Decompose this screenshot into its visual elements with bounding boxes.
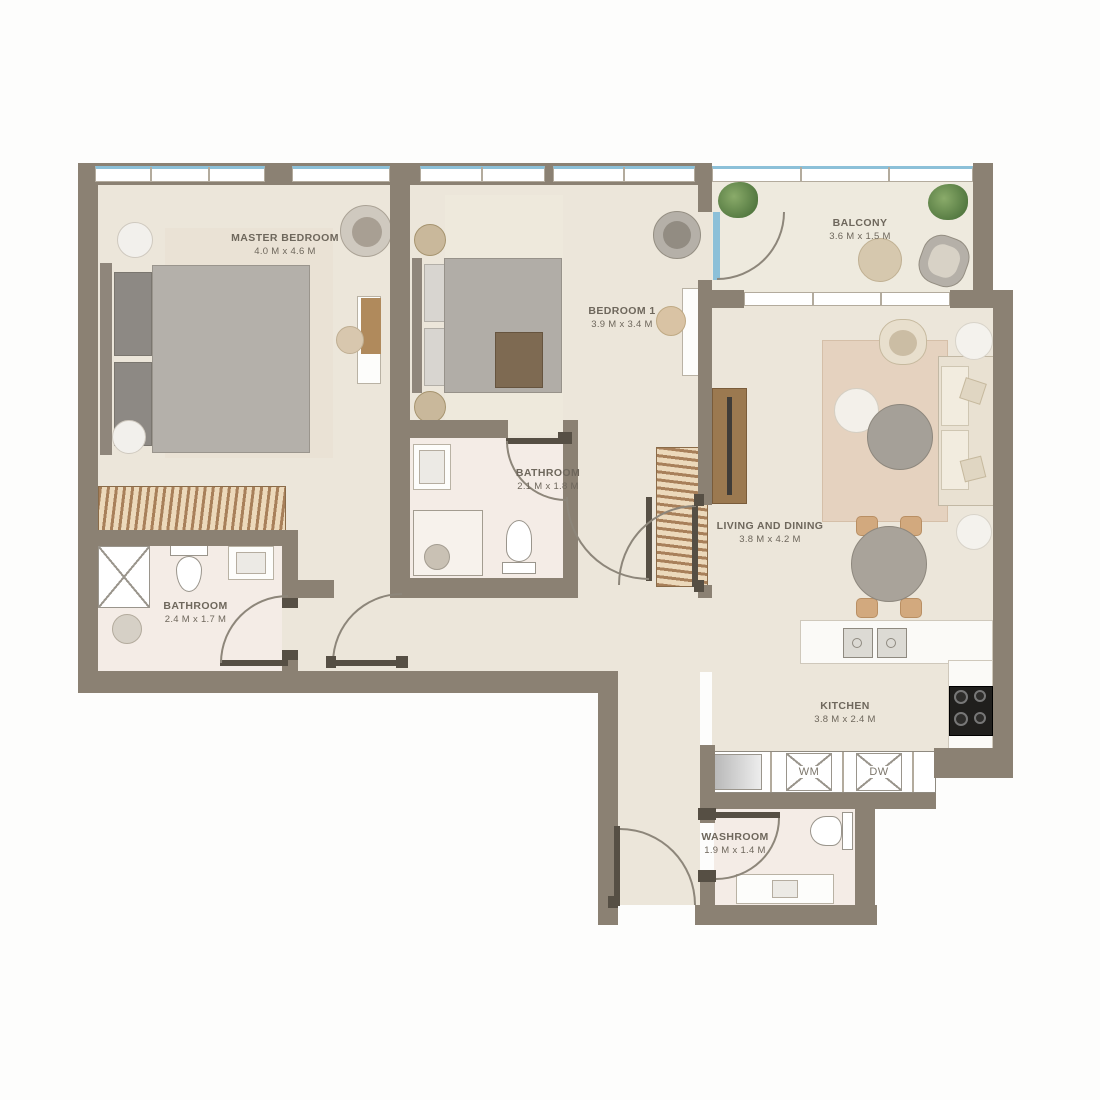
bedroom1-label: BEDROOM 1 3.9 M x 3.4 M [552, 305, 692, 331]
stove-burner [954, 712, 968, 726]
balcony-railing-mullion [888, 167, 890, 181]
dishwasher: DW [856, 753, 902, 791]
bed1-nightstand [414, 391, 446, 423]
door-jamb [326, 656, 336, 668]
wall-master-bath-top [98, 530, 298, 546]
master-wardrobe [98, 486, 286, 532]
master-vanity-basin [236, 552, 266, 574]
master-stool [336, 326, 364, 354]
washroom-label: WASHROOM 1.9 M x 1.4 M [676, 831, 794, 857]
balcony-railing-mullion [800, 167, 802, 181]
master-shower [98, 546, 150, 608]
bath2-toilet-bowl [506, 520, 532, 562]
balcony-glass-railing [712, 166, 973, 182]
wall-bedroom1-balcony-lower [698, 280, 712, 293]
floor-plan: WM DW [0, 0, 1100, 1100]
wall-living-left [698, 293, 712, 505]
wall-master-bedroom1-divider [390, 183, 410, 598]
wall-bottom-left [78, 671, 618, 693]
master-window [292, 166, 390, 182]
strip-divider [770, 752, 772, 792]
door-jamb [698, 870, 716, 882]
strip-divider [912, 752, 914, 792]
door-jamb [558, 432, 572, 444]
window-mullion [208, 167, 210, 181]
master-bed-pillow [114, 272, 152, 356]
living-armchair-cushion [889, 330, 917, 356]
balcony-ottoman [858, 238, 902, 282]
window-mullion [880, 293, 882, 305]
balcony-label: BALCONY 3.6 M x 1.5 M [790, 217, 930, 243]
washing-machine-label: WM [797, 766, 822, 778]
bath2-sink-basin [419, 450, 445, 484]
dining-table [851, 526, 927, 602]
hall-connector-floor [598, 598, 712, 672]
master-window [95, 166, 265, 182]
washing-machine: WM [786, 753, 832, 791]
washroom-toilet-bowl [810, 816, 842, 846]
door-jamb [396, 656, 408, 668]
door-jamb [698, 808, 716, 820]
wall-washroom-left-lower [700, 877, 715, 925]
wall-bath2-top [410, 420, 508, 438]
washroom-toilet-tank [842, 812, 853, 850]
window-mullion [812, 293, 814, 305]
master-dresser-wood [361, 298, 381, 354]
wall-kitchen-bottom-right [934, 748, 1013, 778]
door-jamb [282, 650, 298, 660]
bed1-nightstand [414, 224, 446, 256]
wall-balcony-right [973, 163, 993, 293]
wall-washroom-bottom [695, 905, 877, 925]
master-pouf [117, 222, 153, 258]
living-plant-pot [955, 322, 993, 360]
bathroom2-label: BATHROOM 2.1 M x 1.8 M [488, 467, 608, 493]
tv-screen [727, 397, 732, 495]
door-jamb [694, 494, 704, 506]
bath2-shower-drain [424, 544, 450, 570]
master-bed-headboard [100, 263, 112, 455]
wall-left [78, 163, 98, 693]
window-mullion [150, 167, 152, 181]
dining-chair [900, 598, 922, 618]
kitchen-sink-drain [852, 638, 862, 648]
wall-window-band-left [712, 290, 744, 308]
window-mullion [481, 167, 483, 181]
wall-living-right [993, 293, 1013, 768]
bed1-armchair-cushion [663, 221, 691, 249]
bed1-headboard [412, 258, 422, 393]
living-window-band [744, 292, 950, 306]
wall-corridor-top [298, 580, 334, 598]
stove-burner [954, 690, 968, 704]
bath2-toilet-tank [502, 562, 536, 574]
bed1-throw [495, 332, 543, 388]
wall-washroom-top [703, 793, 936, 809]
stove-burner [974, 712, 986, 724]
living-dining-label: LIVING AND DINING 3.8 M x 4.2 M [695, 520, 845, 546]
door-jamb [608, 896, 618, 908]
living-plant-pot [956, 514, 992, 550]
master-bed-blanket [152, 265, 310, 453]
fridge [714, 754, 762, 790]
strip-divider [842, 752, 844, 792]
master-pouf [112, 420, 146, 454]
bath2-shower [413, 510, 483, 576]
master-bedroom-label: MASTER BEDROOM 4.0 M x 4.6 M [205, 232, 365, 258]
kitchen-sink-drain [886, 638, 896, 648]
door-jamb [694, 580, 704, 592]
wall-bath2-bottom [390, 578, 578, 598]
stove-burner [974, 690, 986, 702]
dishwasher-label: DW [867, 766, 890, 778]
door-jamb [282, 598, 298, 608]
dining-chair [856, 598, 878, 618]
coffee-table [867, 404, 933, 470]
wall-bedroom1-balcony-upper [698, 183, 712, 212]
kitchen-label: KITCHEN 3.8 M x 2.4 M [785, 700, 905, 726]
window-mullion [623, 167, 625, 181]
balcony-plant [928, 184, 968, 220]
washroom-vanity-basin [772, 880, 798, 898]
master-bathroom-label: BATHROOM 2.4 M x 1.7 M [128, 600, 263, 626]
